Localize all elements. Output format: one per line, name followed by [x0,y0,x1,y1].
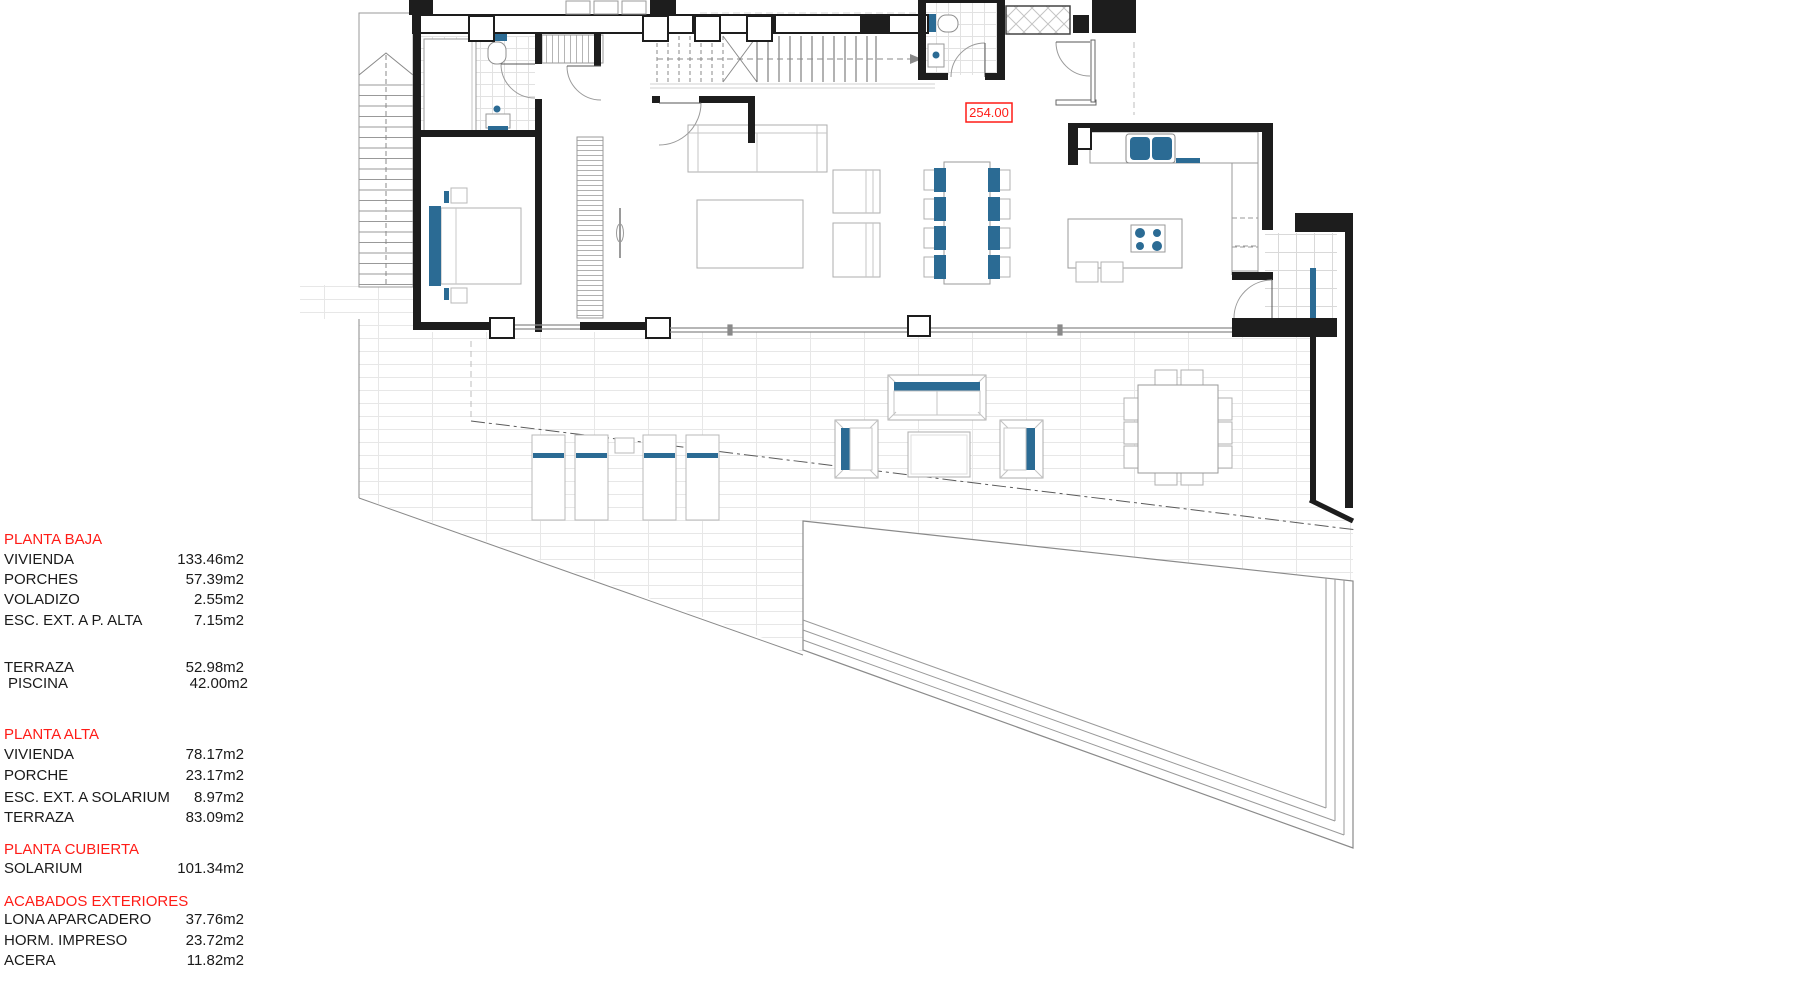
pillar [695,16,720,41]
legend-row: VOLADIZO2.55m2 [4,591,244,608]
legend-value: 7.15m2 [194,612,244,629]
toilet-icon [929,14,936,32]
coffee-table [697,200,803,268]
legend-row: TERRAZA52.98m2 [4,659,244,676]
outdoor-armchair [1000,420,1043,478]
pillar [747,16,772,41]
legend-row: VIVIENDA133.46m2 [4,551,244,568]
legend-label: VOLADIZO [4,591,80,608]
legend-value: 2.55m2 [194,591,244,608]
legend-label: ESC. EXT. A SOLARIUM [4,789,170,806]
entry-porch-floor [1265,233,1337,318]
legend-value: 37.76m2 [186,911,244,928]
legend-row: PORCHES57.39m2 [4,571,244,588]
carport-canvas [1006,6,1070,34]
level-annotation: 254.00 [966,103,1012,122]
legend-label: TERRAZA [4,809,74,826]
level-mark-text: 254.00 [969,105,1009,120]
entry-door [1310,268,1316,318]
legend-row: LONA APARCADERO37.76m2 [4,911,244,928]
legend-label: VIVIENDA [4,746,74,763]
legend-label: PISCINA [8,675,68,692]
bed-headboard [429,206,441,286]
pillar [490,318,514,338]
legend-label: PORCHE [4,767,68,784]
pillar [908,316,930,336]
pillar [469,16,494,41]
legend-label: VIVIENDA [4,551,74,568]
exterior-stairs [359,13,413,287]
nightstand [451,188,467,203]
nightstand [451,288,467,303]
legend-row: ESC. EXT. A P. ALTA7.15m2 [4,612,244,629]
outdoor-table [1138,385,1218,473]
legend-row: ACERA11.82m2 [4,952,244,969]
legend-value: 83.09m2 [186,809,244,826]
stool [1101,262,1123,282]
legend-label: LONA APARCADERO [4,911,151,928]
outdoor-coffee-table [908,432,970,477]
legend-row: ESC. EXT. A SOLARIUM8.97m2 [4,789,244,806]
outdoor-dining [1124,370,1232,485]
legend-value: 8.97m2 [194,789,244,806]
legend-value: 52.98m2 [186,659,244,676]
floor-plan-drawing: 254.00 [0,0,1800,992]
legend-value: 78.17m2 [186,746,244,763]
shower [424,39,476,131]
pillar [643,16,668,41]
bed [441,208,521,284]
legend-row: PORCHE23.17m2 [4,767,244,784]
legend-row: VIVIENDA78.17m2 [4,746,244,763]
legend-row: PISCINA42.00m2 [4,675,248,692]
side-table [615,438,634,453]
legend-label: ACERA [4,952,56,969]
legend-value: 101.34m2 [177,860,244,877]
legend-section-title: PLANTA ALTA [4,726,244,743]
legend-value: 23.17m2 [186,767,244,784]
legend-label: PORCHES [4,571,78,588]
legend-section-title: PLANTA CUBIERTA [4,841,244,858]
legend-label: TERRAZA [4,659,74,676]
legend-row: HORM. IMPRESO23.72m2 [4,932,244,949]
sidewalk-tiles [300,285,413,319]
legend-label: SOLARIUM [4,860,82,877]
legend-section-title: ACABADOS EXTERIORES [4,893,244,910]
hall-closet [542,35,603,63]
shelving-unit [577,137,603,318]
legend-value: 57.39m2 [186,571,244,588]
legend-label: ESC. EXT. A P. ALTA [4,612,142,629]
floor-plan-sheet: 254.00 PLANTA BAJA VIVIENDA133.46m2 PORC… [0,0,1800,992]
pillar [646,318,670,338]
legend-row: TERRAZA83.09m2 [4,809,244,826]
legend-value: 133.46m2 [177,551,244,568]
legend-value: 23.72m2 [186,932,244,949]
legend-value: 11.82m2 [187,952,244,969]
legend-value: 42.00m2 [190,675,248,692]
stool [1076,262,1098,282]
legend-row: SOLARIUM101.34m2 [4,860,244,877]
legend-label: HORM. IMPRESO [4,932,127,949]
sink-icon [486,114,510,128]
legend-section-title: PLANTA BAJA [4,531,244,548]
